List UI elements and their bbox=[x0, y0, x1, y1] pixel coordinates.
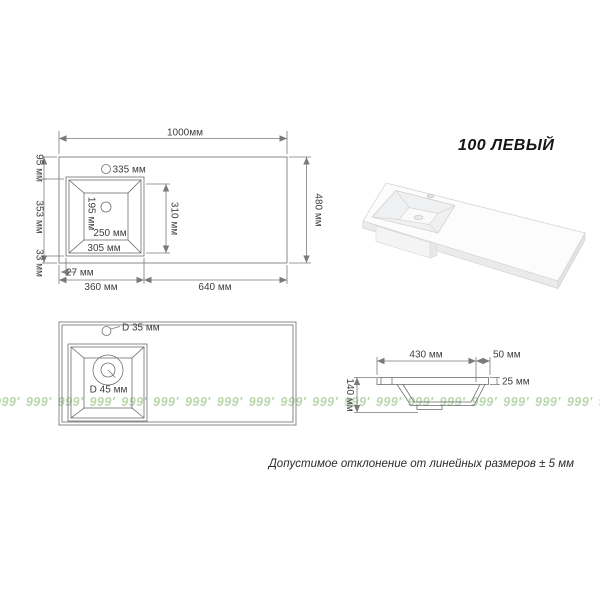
dim-back-margin: 95 мм bbox=[34, 154, 45, 182]
dim-faucet-offset: 335 мм bbox=[113, 165, 146, 176]
model-title: 100 ЛЕВЫЙ bbox=[458, 137, 598, 155]
product-render bbox=[363, 183, 585, 289]
drain-stub bbox=[417, 406, 442, 410]
dim-edge-offset: 50 мм bbox=[493, 350, 521, 361]
holes-view: D 35 мм D 45 мм bbox=[59, 322, 296, 425]
drain-hole bbox=[414, 215, 423, 219]
countertop-inner-edge bbox=[62, 325, 293, 422]
dim-basin-top-width: 430 мм bbox=[409, 350, 442, 361]
tolerance-note: Допустимое отклонение от линейных размер… bbox=[154, 458, 574, 470]
dim-total-height: 140 мм bbox=[344, 378, 355, 411]
dim-side-margin: 27 мм bbox=[66, 268, 94, 279]
dim-basin-rim-width: 305 мм bbox=[87, 243, 120, 254]
dim-overall-width: 1000мм bbox=[167, 128, 203, 139]
basin-bottom bbox=[84, 358, 132, 408]
drain-hole bbox=[101, 202, 111, 212]
dim-basin-outer-length: 353 мм bbox=[34, 200, 45, 233]
plan-dimensions: 1000мм 480 мм 95 мм 353 мм 33 мм 335 мм … bbox=[34, 128, 324, 294]
spec-sheet: 999′ 999′ 999′ 999′ 999′ 999′ 999′ 999′ … bbox=[0, 0, 600, 600]
faucet-hole bbox=[427, 194, 434, 198]
slab-profile bbox=[377, 378, 489, 385]
faucet-hole bbox=[102, 165, 111, 174]
dim-overall-depth: 480 мм bbox=[313, 193, 324, 226]
drawing-canvas: 1000мм 480 мм 95 мм 353 мм 33 мм 335 мм … bbox=[0, 0, 600, 600]
basin-inner-wall bbox=[403, 385, 480, 403]
dim-basin-zone-width: 360 мм bbox=[84, 282, 117, 293]
section-view: 430 мм 50 мм 25 мм 140 мм bbox=[344, 350, 530, 413]
dim-front-margin: 33 мм bbox=[34, 249, 45, 277]
dim-basin-inner-length: 310 мм bbox=[169, 202, 180, 235]
dim-drain-hole-diameter: D 45 мм bbox=[90, 385, 128, 396]
countertop-outline bbox=[59, 322, 296, 425]
dim-counter-zone-width: 640 мм bbox=[198, 282, 231, 293]
dim-basin-bottom-depth: 195 мм bbox=[86, 197, 97, 230]
faucet-hole bbox=[102, 327, 111, 336]
dim-basin-bottom-width: 250 мм bbox=[93, 228, 126, 239]
dim-faucet-hole-diameter: D 35 мм bbox=[122, 323, 160, 334]
dim-slab-thickness: 25 мм bbox=[502, 377, 530, 388]
